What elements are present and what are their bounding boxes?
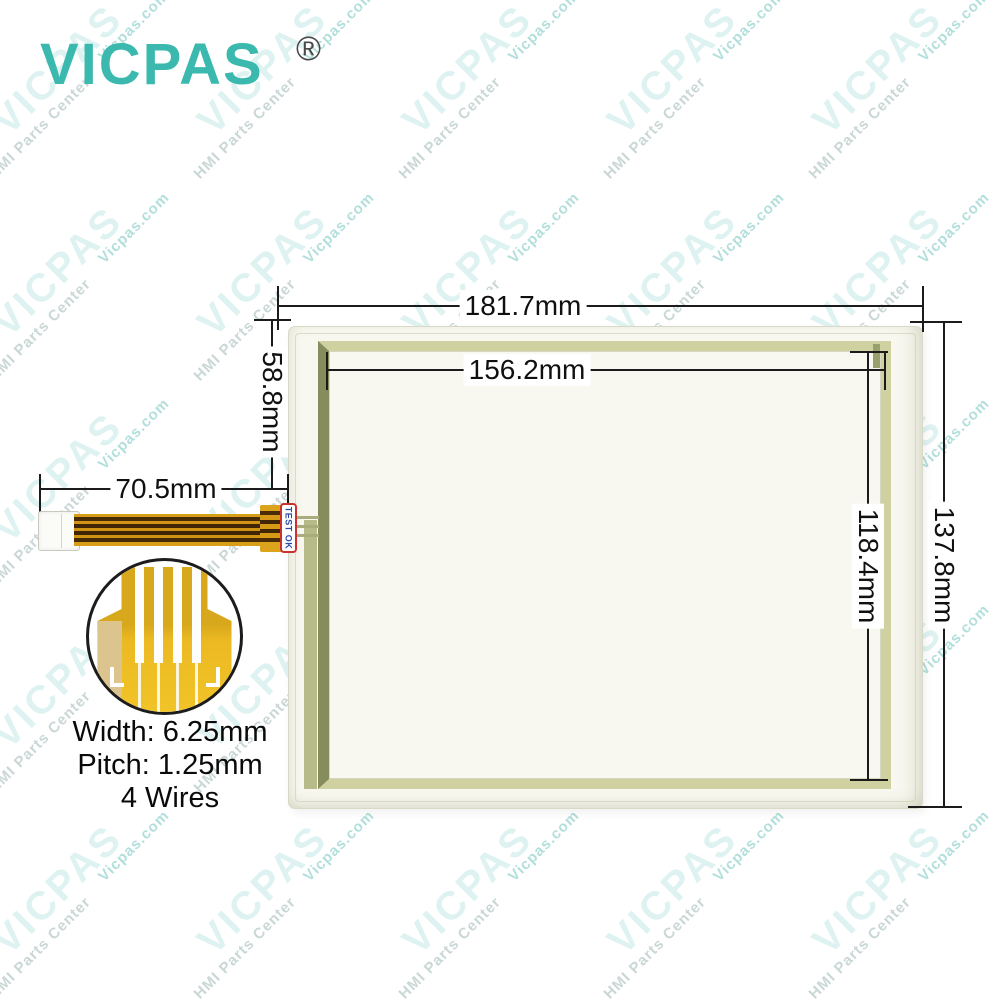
connector-tail-detail <box>94 567 236 715</box>
watermark-site: Vicpas.com <box>710 189 788 267</box>
watermark-site: Vicpas.com <box>915 189 993 267</box>
dim-outer-width-tick-right <box>922 286 924 332</box>
dim-tail-offset-label: 58.8mm <box>256 346 288 457</box>
spec-wires: 4 Wires <box>50 782 290 815</box>
connector-gap <box>173 567 182 663</box>
watermark-org: HMI Parts Center <box>0 894 94 1000</box>
connector-notch <box>110 667 114 687</box>
watermark-brand: VICPAS <box>0 816 132 964</box>
watermark-org: HMI Parts Center <box>806 894 915 1000</box>
watermark-brand: VICPAS <box>189 198 337 346</box>
watermark-site: Vicpas.com <box>915 395 993 473</box>
watermark-org: HMI Parts Center <box>806 74 915 183</box>
watermark-site: Vicpas.com <box>505 189 583 267</box>
watermark-org: HMI Parts Center <box>601 894 710 1000</box>
watermark-org: HMI Parts Center <box>0 276 94 385</box>
dim-active-width-tick-left <box>326 352 328 390</box>
dim-outer-height-tick-bottom <box>908 806 962 808</box>
watermark-org: HMI Parts Center <box>396 894 505 1000</box>
dim-active-width-line <box>327 369 886 371</box>
dim-outer-height-label: 137.8mm <box>928 502 960 629</box>
dim-outer-height-tick-top <box>910 321 962 323</box>
vicpas-logo-text: VICPAS <box>40 32 264 97</box>
cable-plug-seam <box>61 514 62 548</box>
watermark-brand: VICPAS <box>599 0 747 144</box>
connector-gap <box>135 567 144 663</box>
product-image: VICPASVicpas.comHMI Parts CenterVICPASVi… <box>0 0 1000 1000</box>
watermark-brand: VICPAS <box>804 816 952 964</box>
watermark-brand: VICPAS <box>189 816 337 964</box>
dim-tail-offset-tick-top <box>254 319 291 321</box>
connector-notch <box>216 667 220 687</box>
dim-outer-width-label: 181.7mm <box>460 290 587 322</box>
circuit-trace-corner <box>873 344 880 368</box>
connector-specs: Width: 6.25mm Pitch: 1.25mm 4 Wires <box>50 716 290 815</box>
watermark-site: Vicpas.com <box>95 395 173 473</box>
magnifier-detail-circle <box>86 558 243 715</box>
watermark-brand: VICPAS <box>599 816 747 964</box>
spec-pitch: Pitch: 1.25mm <box>50 749 290 782</box>
dim-outer-width-line <box>278 305 924 307</box>
watermark-site: Vicpas.com <box>710 0 788 65</box>
registered-trademark-symbol: ® <box>296 30 321 69</box>
dim-outer-width-tick-left <box>277 286 279 330</box>
watermark-site: Vicpas.com <box>505 0 583 65</box>
dim-active-height-label: 118.4mm <box>852 504 884 629</box>
watermark-brand: VICPAS <box>804 198 952 346</box>
watermark-site: Vicpas.com <box>95 807 173 885</box>
vicpas-logo: VICPAS ® <box>40 36 264 94</box>
watermark-brand: VICPAS <box>394 0 542 144</box>
watermark-site: Vicpas.com <box>300 807 378 885</box>
connector-gap <box>192 567 201 663</box>
flex-ribbon-cable <box>74 514 266 546</box>
watermark-site: Vicpas.com <box>915 807 993 885</box>
watermark-brand: VICPAS <box>804 0 952 144</box>
spec-width: Width: 6.25mm <box>50 716 290 749</box>
watermark-site: Vicpas.com <box>710 807 788 885</box>
dim-cable-length-ext-right <box>287 474 289 506</box>
watermark-org: HMI Parts Center <box>601 74 710 183</box>
watermark-org: HMI Parts Center <box>191 894 300 1000</box>
connector-gap-thin <box>195 663 198 715</box>
watermark-site: Vicpas.com <box>915 0 993 65</box>
dim-active-height-tick-top <box>850 351 888 353</box>
dim-cable-length-ext-left <box>39 474 41 514</box>
circuit-trace-vertical <box>304 520 317 789</box>
dim-cable-length-label: 70.5mm <box>110 473 221 505</box>
watermark-site: Vicpas.com <box>505 807 583 885</box>
dim-active-width-label: 156.2mm <box>464 354 591 386</box>
watermark-brand: VICPAS <box>599 198 747 346</box>
watermark-site: Vicpas.com <box>300 189 378 267</box>
dim-active-height-tick-bottom <box>850 779 888 781</box>
watermark-brand: VICPAS <box>0 198 132 346</box>
test-ok-sticker: TEST OK <box>280 503 297 553</box>
connector-gap-thin <box>138 663 141 715</box>
test-ok-label: TEST OK <box>284 507 294 550</box>
watermark-brand: VICPAS <box>394 816 542 964</box>
connector-gap-thin <box>176 663 179 715</box>
active-area-border <box>318 341 891 789</box>
dim-active-width-tick-right <box>884 352 886 390</box>
connector-gap-thin <box>157 663 160 715</box>
watermark-site: Vicpas.com <box>95 189 173 267</box>
watermark-org: HMI Parts Center <box>396 74 505 183</box>
watermark-brand: VICPAS <box>394 198 542 346</box>
connector-gap <box>154 567 163 663</box>
